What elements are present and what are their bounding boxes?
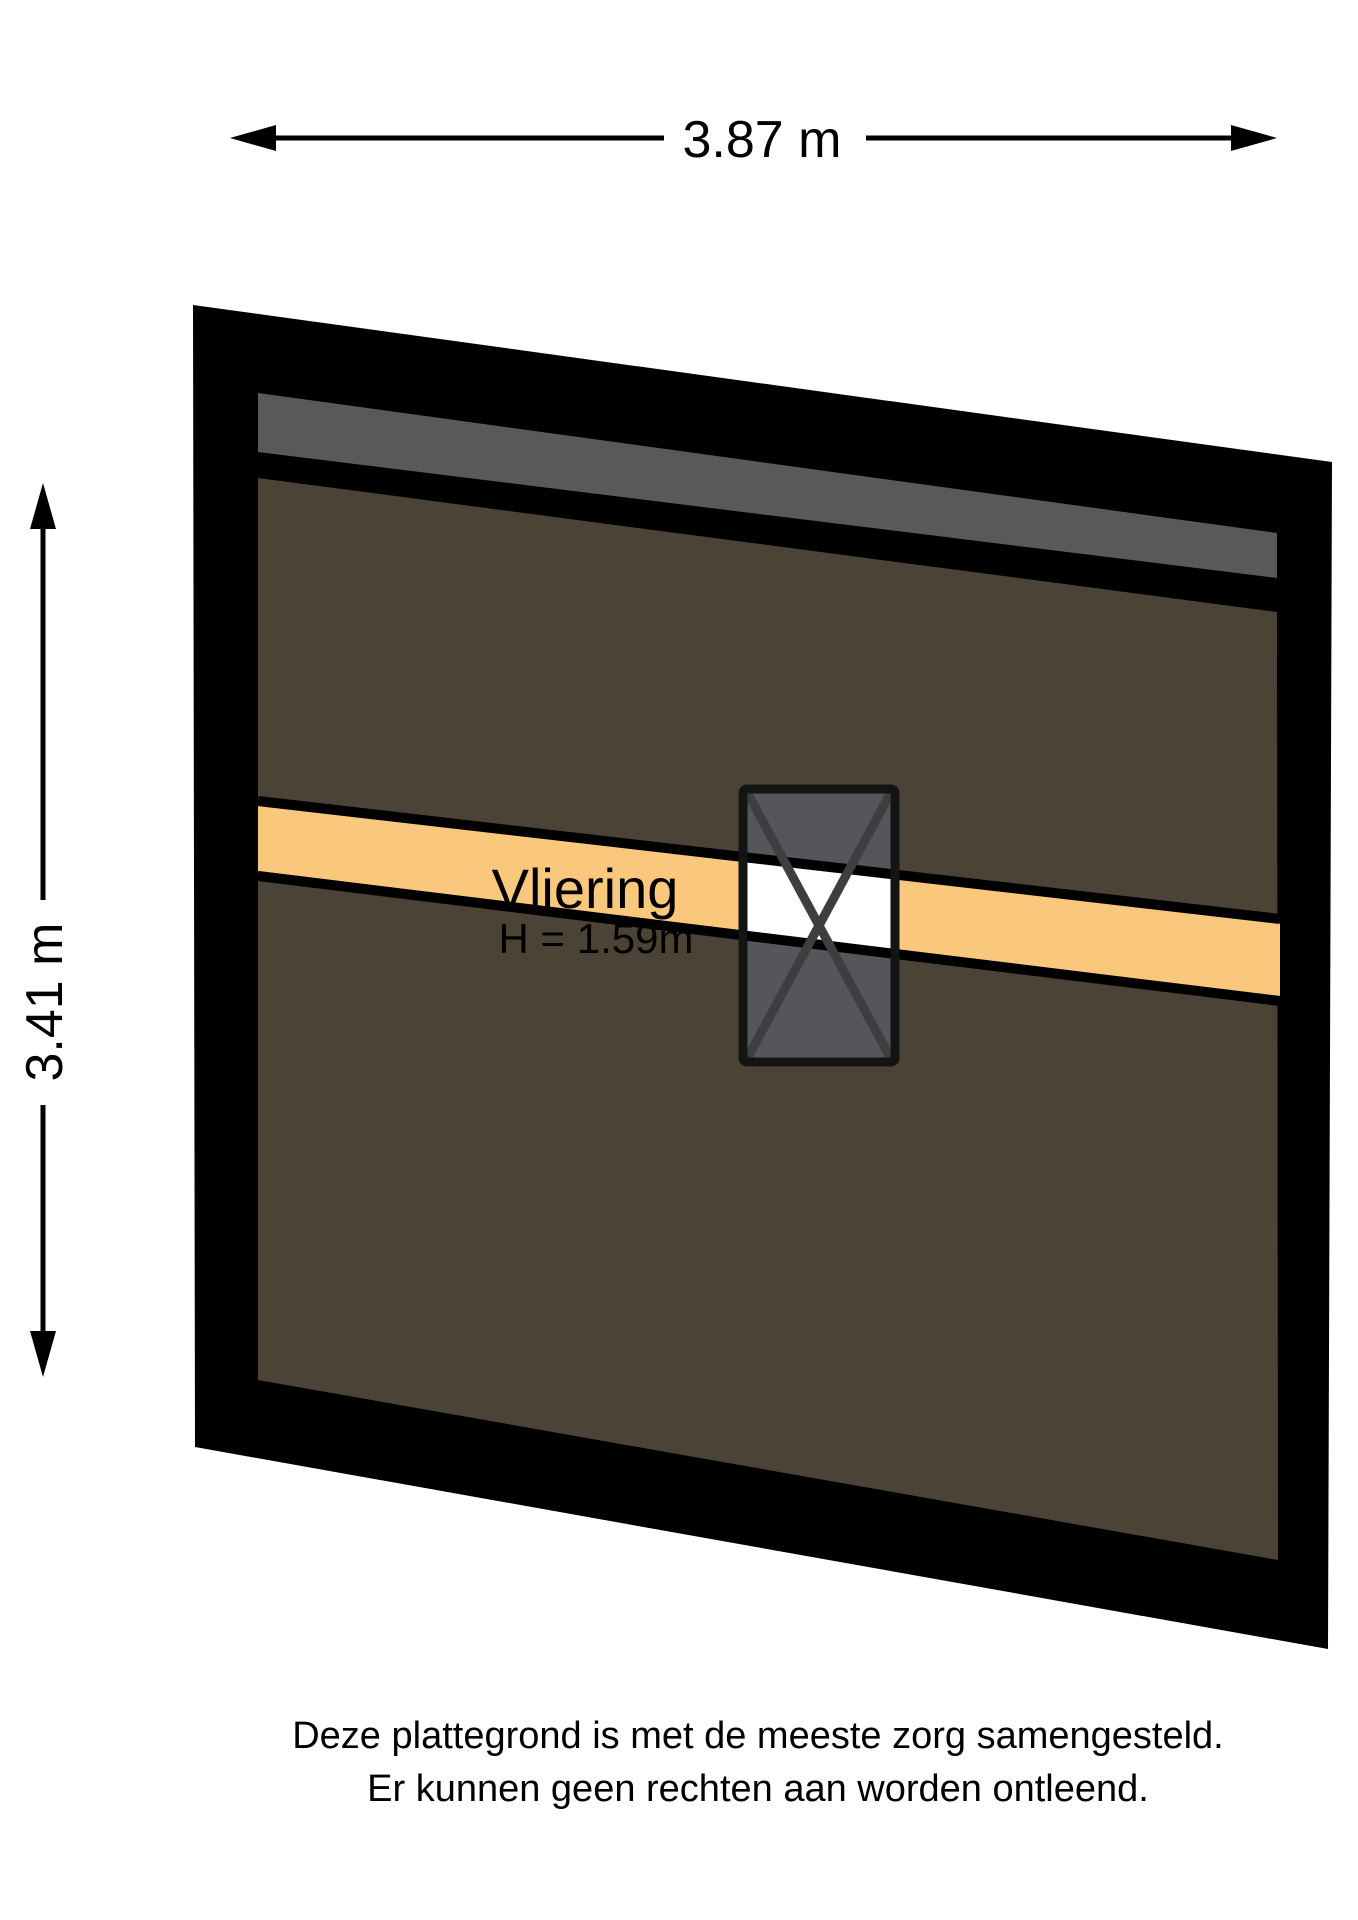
floorplan-canvas: 3.87 m 3.41 m bbox=[0, 0, 1358, 1920]
width-dimension-label: 3.87 m bbox=[683, 111, 842, 169]
disclaimer-line-1: Deze plattegrond is met de meeste zorg s… bbox=[292, 1715, 1224, 1757]
room-label: Vliering bbox=[492, 857, 679, 920]
room-height-label: H = 1.59m bbox=[499, 915, 694, 962]
arrowhead-up-icon bbox=[30, 483, 56, 529]
arrowhead-down-icon bbox=[30, 1331, 56, 1377]
disclaimer-line-2: Er kunnen geen rechten aan worden ontlee… bbox=[367, 1768, 1149, 1810]
height-dimension-arrow: 3.41 m bbox=[16, 483, 74, 1377]
arrowhead-right-icon bbox=[1231, 125, 1277, 151]
arrowhead-left-icon bbox=[230, 125, 276, 151]
floorplan-page: 3.87 m 3.41 m bbox=[0, 0, 1358, 1920]
width-dimension-arrow: 3.87 m bbox=[230, 111, 1277, 169]
height-dimension-label: 3.41 m bbox=[16, 923, 74, 1082]
